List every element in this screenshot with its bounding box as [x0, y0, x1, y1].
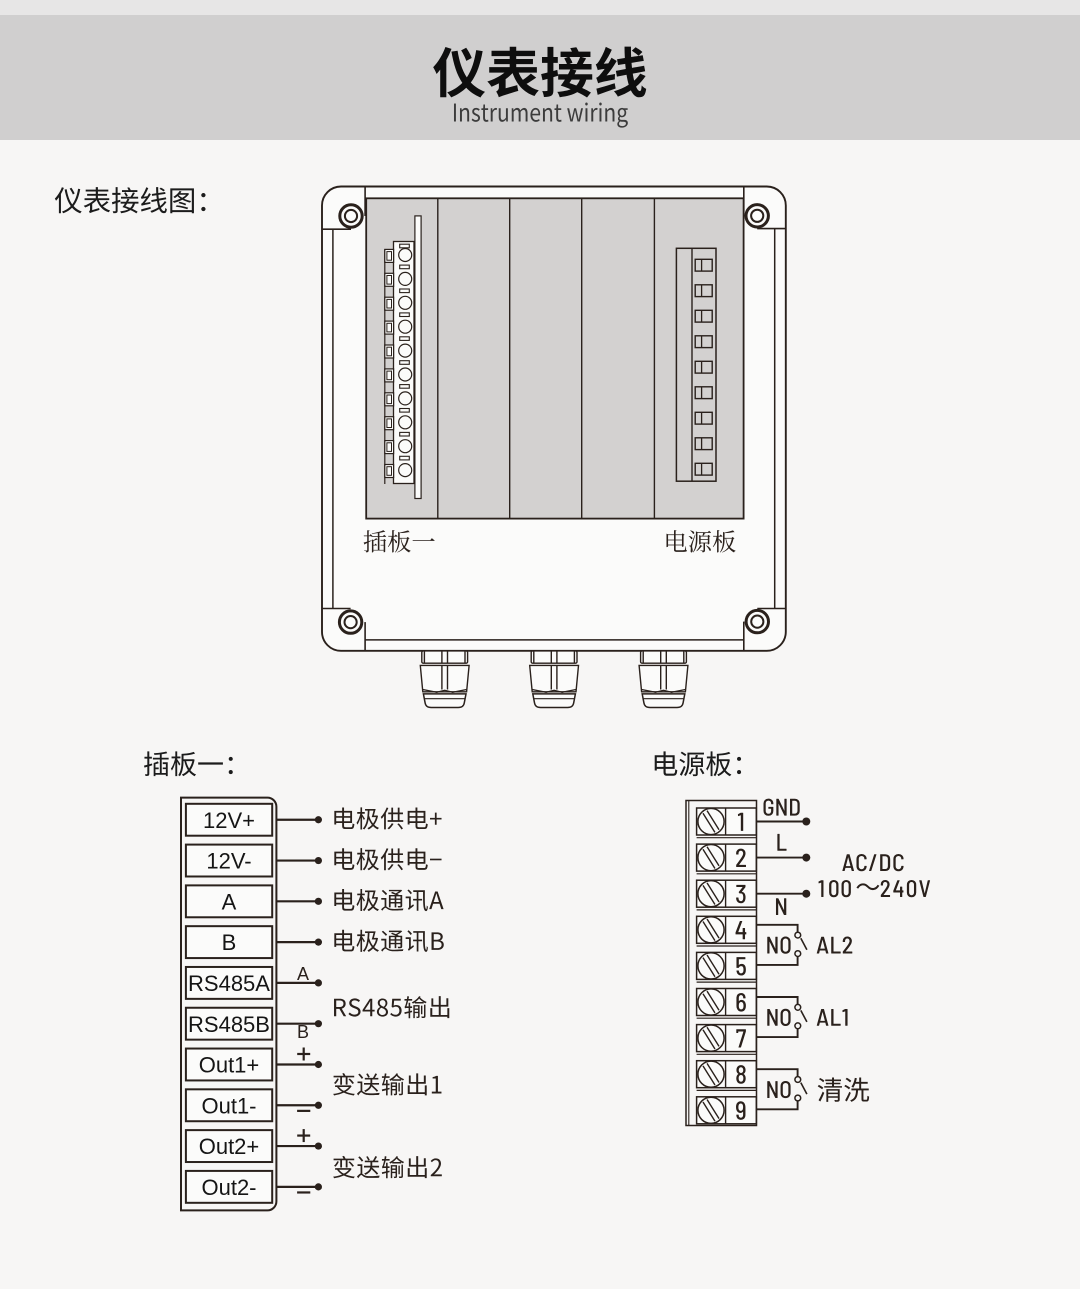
svg-text:RS485A: RS485A: [188, 971, 270, 996]
svg-text:12V-: 12V-: [206, 849, 251, 874]
svg-text:RS485B: RS485B: [188, 1012, 270, 1037]
svg-text:Out1-: Out1-: [201, 1093, 256, 1118]
svg-text:Out2+: Out2+: [199, 1134, 260, 1159]
svg-text:B: B: [297, 1022, 309, 1042]
svg-text:Out2-: Out2-: [201, 1175, 256, 1200]
svg-text:A: A: [297, 964, 309, 984]
svg-text:Out1+: Out1+: [199, 1053, 260, 1078]
svg-text:12V+: 12V+: [203, 808, 255, 833]
svg-text:A: A: [222, 889, 237, 914]
svg-text:B: B: [222, 930, 237, 955]
